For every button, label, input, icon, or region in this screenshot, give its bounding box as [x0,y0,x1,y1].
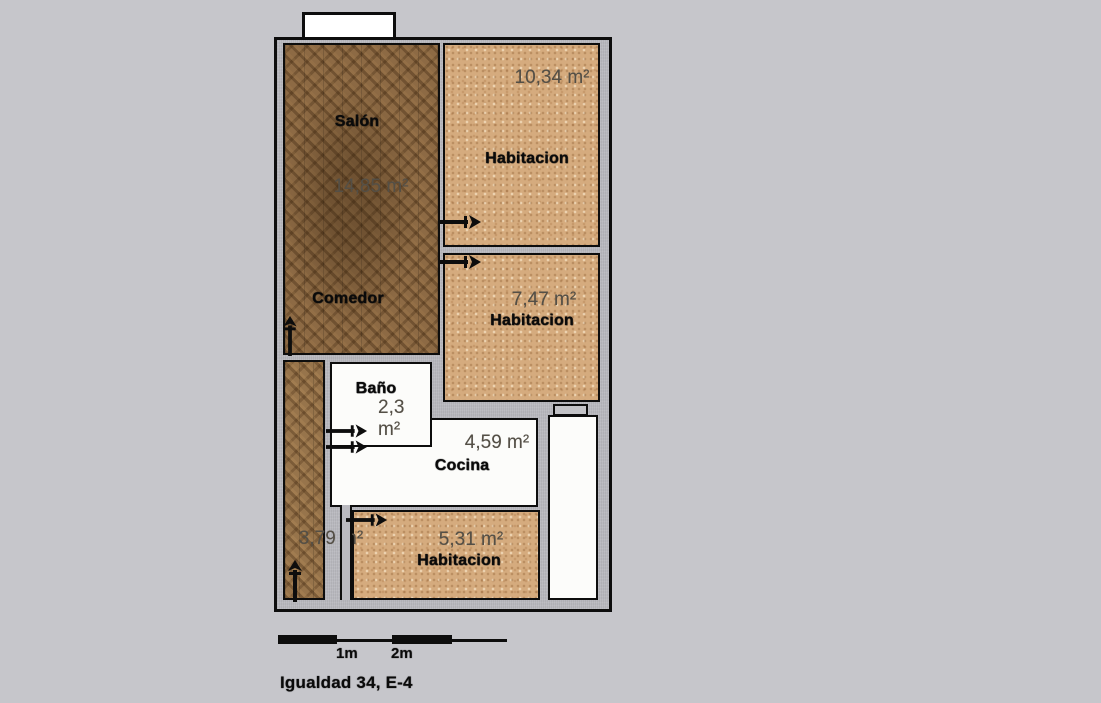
comedor-name-label: Comedor [312,290,384,308]
scale-bar-segment-2 [392,635,452,644]
bedroom-3-area-label: 5,31 m² [439,529,503,551]
floor-plan-canvas: 2,3 m² Salón 14,85 m² Comedor 10,34 m² H… [0,0,1101,703]
door-arrow-icon-kitchen [326,439,368,455]
door-arrow-icon-bedroom-2 [438,254,482,270]
scale-tick-2m: 2m [391,645,413,662]
scale-bar-segment-1 [278,635,337,644]
door-arrow-icon-entrance [287,560,303,602]
room-gallery [548,415,598,600]
plan-title: Igualdad 34, E-4 [280,673,413,693]
door-arrow-icon-bedroom-3 [346,512,388,528]
hallway-area-label: 3,79 m² [299,528,363,550]
bedroom-2-name-label: Habitacion [490,312,574,330]
scale-tick-1m: 1m [336,645,358,662]
bathroom-area-label: 2,3 m² [378,397,430,441]
window-stub [553,404,588,416]
salon-area-label: 14,85 m² [334,176,409,198]
kitchen-area-label: 4,59 m² [465,432,529,454]
bathroom-name-label: Baño [356,380,397,398]
bedroom-2-area-label: 7,47 m² [512,289,576,311]
door-arrow-icon-bedroom-1 [438,214,482,230]
door-arrow-icon-salon [282,316,298,356]
bedroom-1-area-label: 10,34 m² [515,67,590,89]
bedroom-3-name-label: Habitacion [417,552,501,570]
room-salon-comedor [283,43,440,355]
door-arrow-icon-bathroom [326,423,368,439]
bedroom-1-name-label: Habitacion [485,150,569,168]
salon-name-label: Salón [335,113,380,131]
kitchen-name-label: Cocina [435,457,490,475]
floor-plan: 2,3 m² Salón 14,85 m² Comedor 10,34 m² H… [274,37,612,612]
